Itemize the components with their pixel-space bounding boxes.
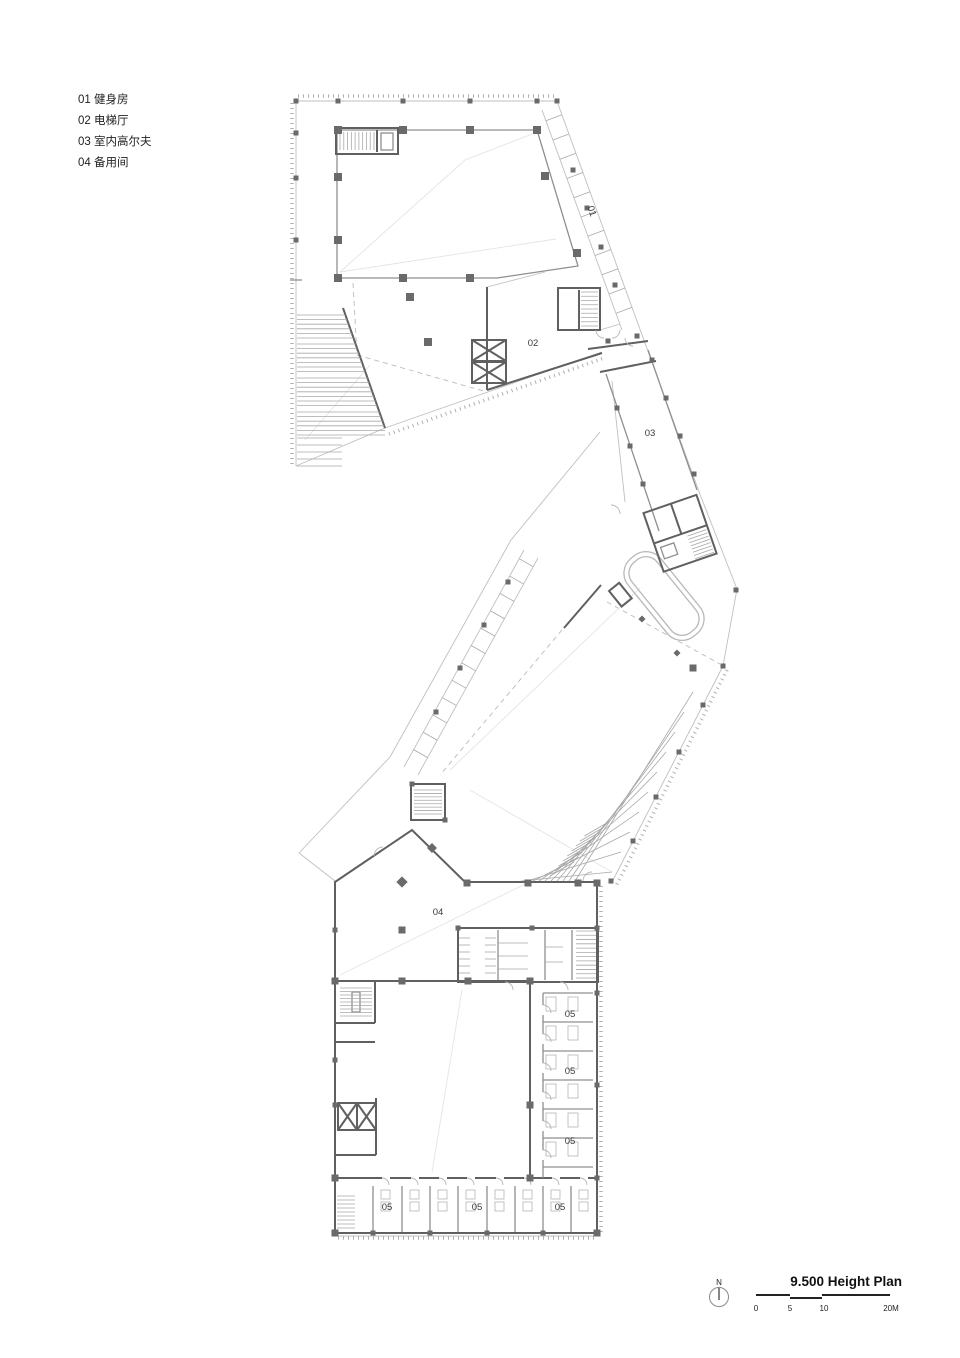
room-labels: 01 02 03 04 05 05 05 05 05 05 <box>382 204 656 1213</box>
site-outline <box>290 101 737 1236</box>
room-label-01: 01 <box>585 204 599 217</box>
north-label: N <box>716 1278 722 1287</box>
room-label-05: 05 <box>472 1202 483 1213</box>
drawing-title: 9.500 Height Plan <box>790 1274 902 1289</box>
room-label-04: 04 <box>433 907 444 918</box>
room-label-05: 05 <box>382 1202 393 1213</box>
title-block: N 9.500 Height Plan 0 5 10 20M <box>710 1274 903 1313</box>
eave-hatching <box>292 96 727 1238</box>
room-label-02: 02 <box>528 338 539 349</box>
door-arcs <box>374 330 633 990</box>
room-label-05: 05 <box>565 1066 576 1077</box>
room-label-05: 05 <box>565 1009 576 1020</box>
scale-tick-5: 5 <box>788 1304 793 1313</box>
room-label-03: 03 <box>645 428 656 439</box>
ramp-box <box>609 583 632 607</box>
bleacher-seating <box>297 315 693 881</box>
structural-walls <box>335 128 656 1233</box>
dashed-guidelines <box>353 283 720 775</box>
architectural-drawing-page: 01 健身房 02 电梯厅 03 室内高尔夫 04 备用间 <box>0 0 960 1358</box>
floor-plan-drawing: 01 02 03 04 05 05 05 05 05 05 N 9.500 He… <box>0 0 960 1358</box>
scale-tick-10: 10 <box>820 1304 829 1313</box>
scale-tick-20m: 20M <box>883 1304 899 1313</box>
scale-tick-0: 0 <box>754 1304 759 1313</box>
interior-walls <box>337 130 697 1012</box>
corridor-cells <box>414 115 632 758</box>
room-furniture <box>381 938 588 1211</box>
room-label-05: 05 <box>555 1202 566 1213</box>
room-label-05: 05 <box>565 1136 576 1147</box>
scale-bar: 0 5 10 20M <box>754 1295 899 1313</box>
